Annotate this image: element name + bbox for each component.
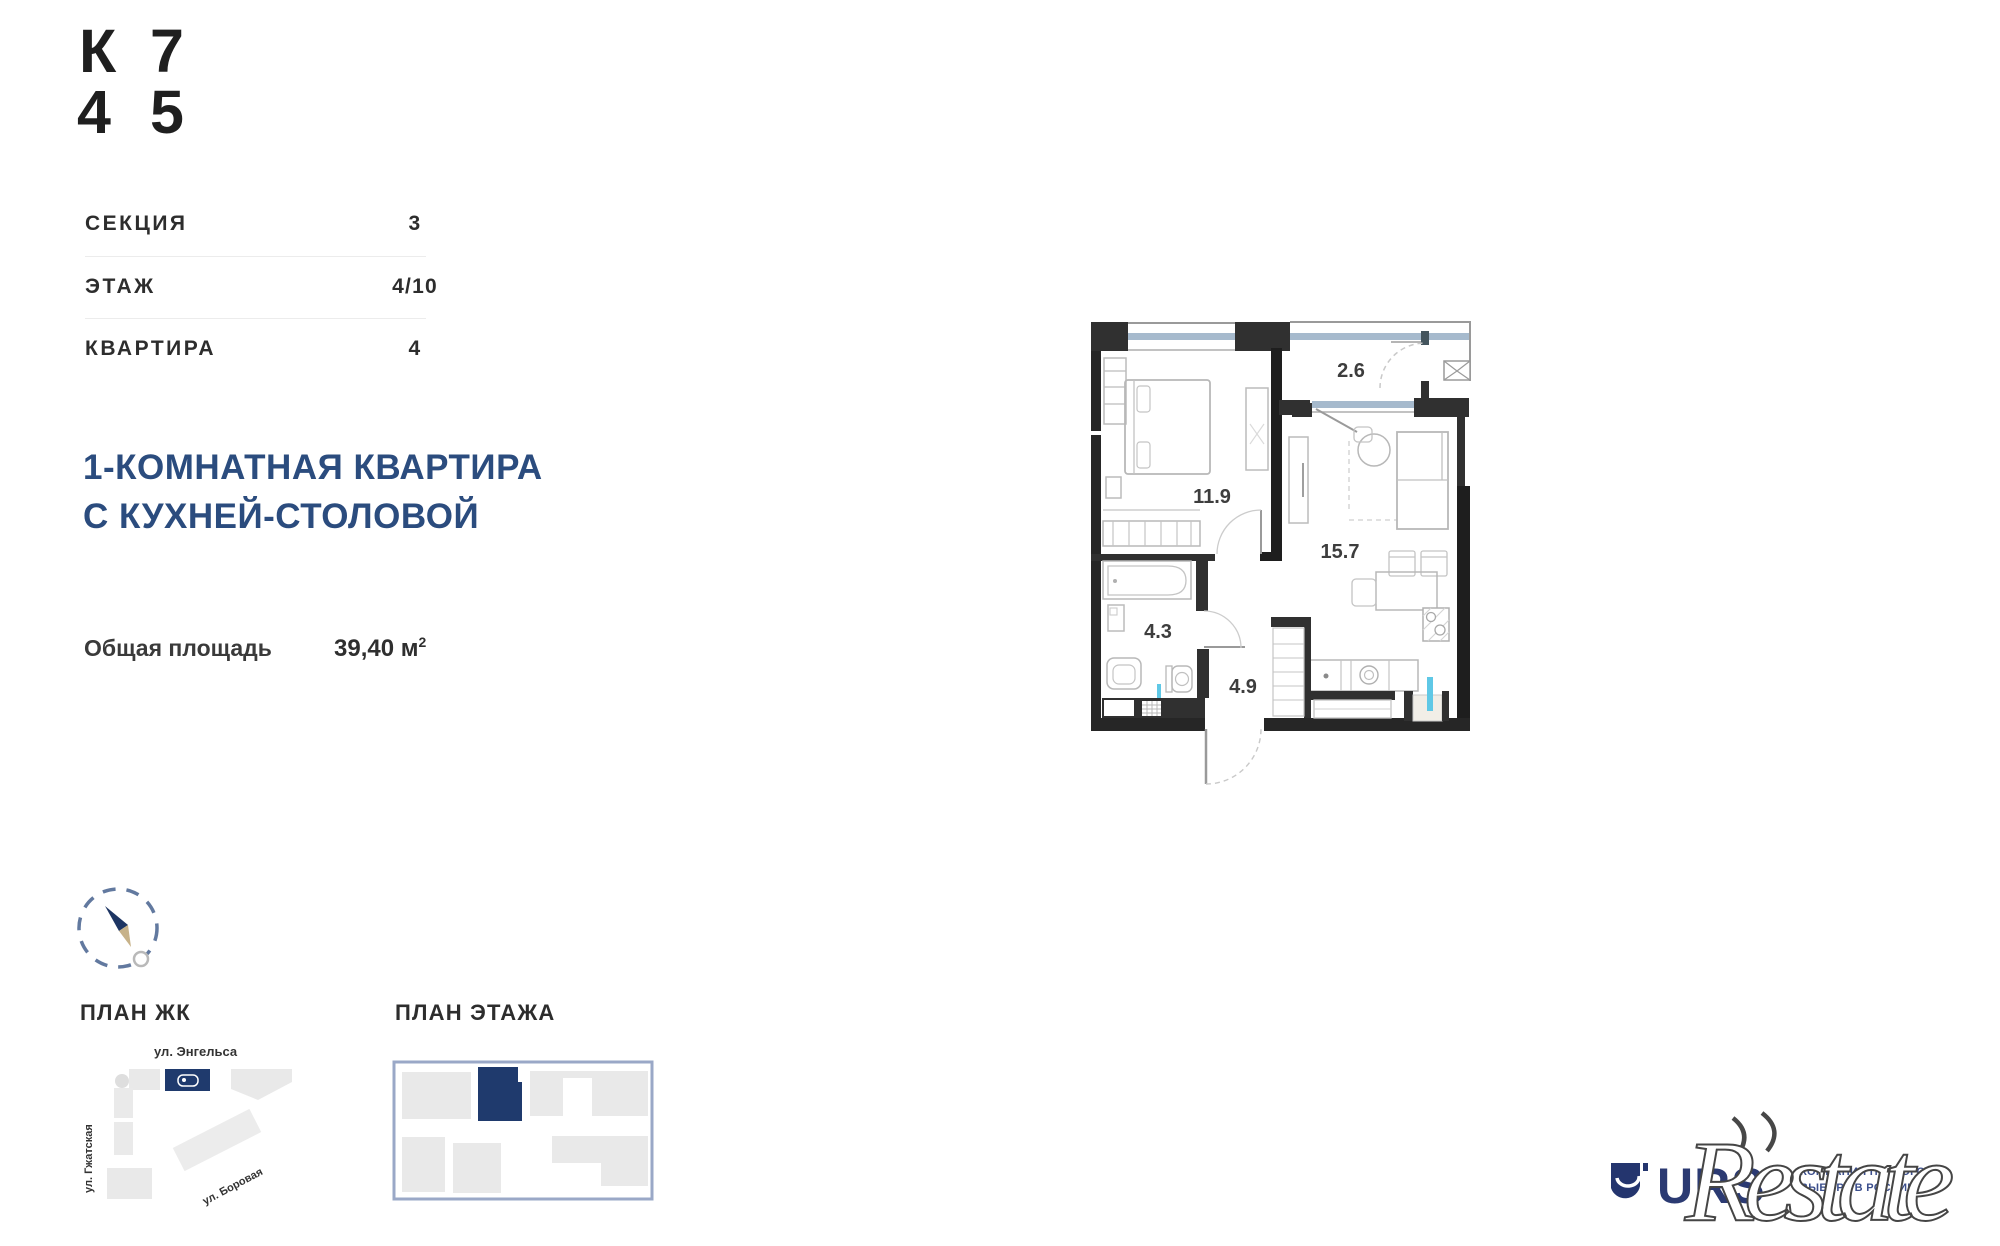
svg-text:ул. Гжатская: ул. Гжатская [83, 1124, 95, 1193]
svg-text:2.6: 2.6 [1337, 360, 1365, 382]
svg-text:ул. Боровая: ул. Боровая [201, 1166, 265, 1208]
svg-text:11.9: 11.9 [1193, 486, 1231, 508]
svg-text:4.9: 4.9 [1229, 676, 1257, 698]
svg-text:15.7: 15.7 [1321, 541, 1360, 563]
svg-text:4.3: 4.3 [1144, 621, 1172, 643]
svg-text:ул. Энгельса: ул. Энгельса [154, 1044, 238, 1059]
